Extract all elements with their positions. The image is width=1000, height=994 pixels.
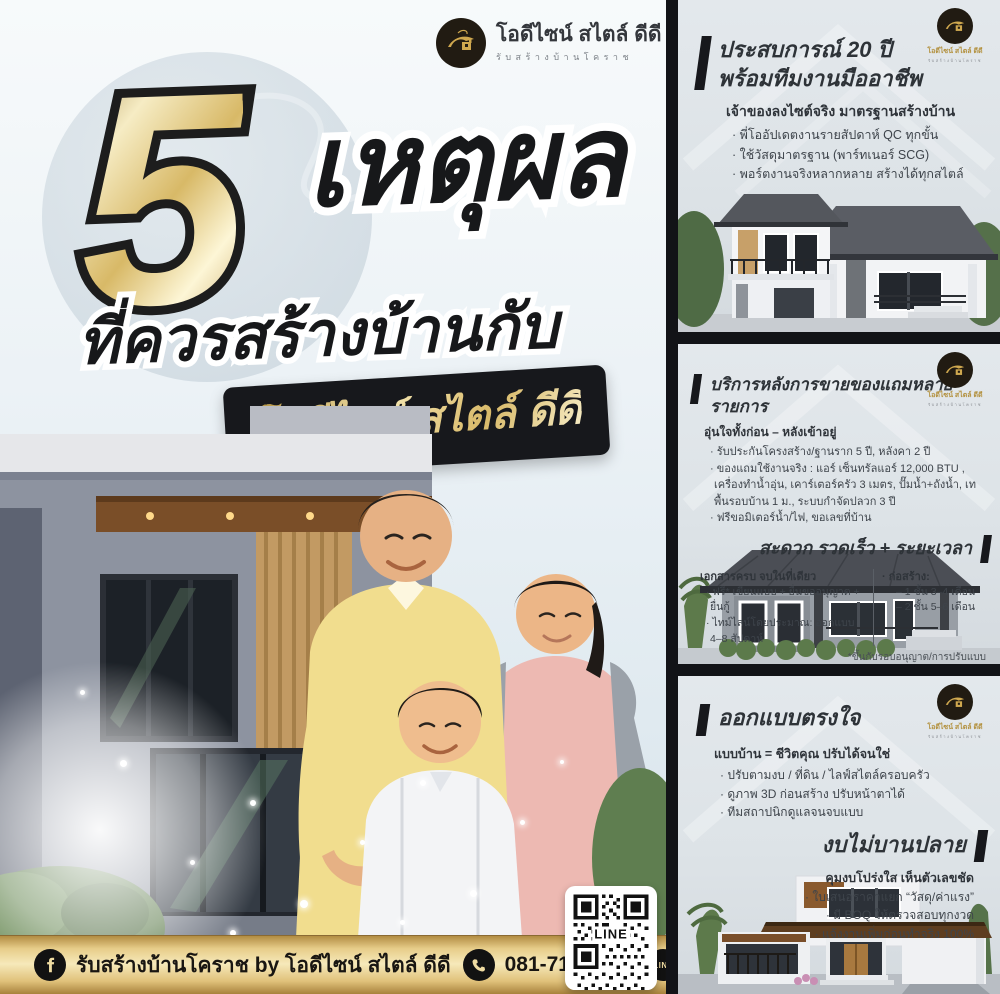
card-logo: โอดีไซน์ สไตล์ ดีดี รับสร้างบ้านโคราช (918, 8, 992, 64)
info-card-experience: โอดีไซน์ สไตล์ ดีดี รับสร้างบ้านโคราช ปร… (678, 0, 1000, 332)
card-logo-tagline: รับสร้างบ้านโคราช (918, 57, 992, 64)
house-photo-two-story (678, 164, 1000, 332)
info-card-design: โอดีไซน์ สไตล์ ดีดี รับสร้างบ้านโคราช ออ… (678, 676, 1000, 994)
sparkle-dot (120, 760, 127, 767)
sparkle-dot (190, 860, 195, 865)
card-subheading: อุ่นใจทั้งก่อน – หลังเข้าอยู่ (704, 423, 1000, 442)
bullet-item: · ไทม์ไลน์โดยประมาณ: ออกแบบ 4–8 สัปดาห์ (700, 616, 865, 648)
column-heading: · ก่อสร้าง: (882, 567, 992, 585)
bullet-item: · ทีมสถาปนิกดูแลจนจบแบบ (714, 803, 1000, 822)
budget-block: คุมงบโปร่งใส เห็นตัวเลขชัด · ใบเสนอราคาแ… (678, 868, 974, 944)
sparkle-dot (400, 920, 405, 925)
section2-subheading: คุมงบโปร่งใส เห็นตัวเลขชัด (678, 868, 974, 888)
hero-headline: เหตุผล เหตุผล (304, 101, 627, 224)
bullet-item: – 2 ชั้น 5–6 เดือน (890, 600, 992, 616)
hero-subheadline: ที่ควรสร้างบ้านกับ ที่ควรสร้างบ้านกับ (77, 291, 559, 379)
bullet-item: · ปรับตามงบ / ที่ดิน / ไลฟ์สไตล์ครอบครัว (714, 766, 1000, 785)
poster: โอดีไซน์ สไตล์ ดีดี รับสร้างบ้านโคราช 5 … (0, 0, 1000, 994)
bullet-item: · มี BOQ ให้ตรวจสอบทุกงวด (678, 906, 974, 925)
sparkle-dot (520, 820, 525, 825)
bullet-list: · ใบเสนอราคาแยก “วัสดุ/ค่าแรง” · มี BOQ … (678, 888, 974, 944)
bullet-item: · ฟรีขอมิเตอร์น้ำ/ไฟ, ขอเลขที่บ้าน (704, 510, 986, 527)
sparkle-dot (300, 900, 308, 908)
sparkle-dot (80, 690, 85, 695)
column-divider (873, 569, 874, 646)
card-title: ออกแบบตรงใจ (718, 704, 860, 733)
line-qr-card[interactable]: LINE (565, 886, 657, 990)
sparkle-dot (250, 800, 256, 806)
bullet-item: · ของแถมใช้งานจริง : แอร์ เซ็นทรัลแอร์ 1… (704, 461, 986, 511)
card-logo-name: โอดีไซน์ สไตล์ ดีดี (918, 722, 992, 733)
brand-name: โอดีไซน์ สไตล์ ดีดี (496, 22, 662, 48)
house-roof-icon (444, 26, 478, 60)
section2-title: สะดวก รวดเร็ว + ระยะเวลา (759, 537, 972, 560)
bullet-item: · แจ้งงานเพิ่มก่อนทำจริง 100% (678, 925, 974, 944)
bullet-item: · ใช้วัสดุมาตรฐาน (พาร์ทเนอร์ SCG) (726, 146, 1000, 165)
construction-column: · ก่อสร้าง: – 1 ชั้น 3–4 เดือน – 2 ชั้น … (882, 567, 992, 648)
documents-column: เอกสารครบ จบในที่เดียว · ฟรี* เขียนแบบ +… (700, 567, 865, 648)
header-accent-bar (690, 374, 702, 404)
brand-logo-icon (436, 18, 486, 68)
card-logo-tagline: รับสร้างบ้านโคราช (918, 401, 992, 408)
footnote: *ขึ้นกับรอบอนุญาต/การปรับแบบ (678, 650, 986, 664)
bullet-list: · รับประกันโครงสร้าง/ฐานราก 5 ปี, หลังคา… (704, 444, 986, 527)
card-logo-tagline: รับสร้างบ้านโคราช (918, 733, 992, 740)
card-logo: โอดีไซน์ สไตล์ ดีดี รับสร้างบ้านโคราช (918, 352, 992, 408)
section2-title: งบไม่บานปลาย (822, 831, 966, 860)
card-logo-icon (937, 684, 973, 720)
right-panel: โอดีไซน์ สไตล์ ดีดี รับสร้างบ้านโคราช ปร… (666, 0, 1000, 994)
bullet-item: · พอร์ตงานจริงหลากหลาย สร้างได้ทุกสไตล์ (726, 165, 1000, 184)
sparkle-dot (560, 760, 564, 764)
phone-icon (463, 949, 495, 981)
card-logo-icon (937, 8, 973, 44)
bullet-item: – 1 ชั้น 3–4 เดือน (890, 585, 992, 601)
card-logo-icon (937, 352, 973, 388)
card-logo: โอดีไซน์ สไตล์ ดีดี รับสร้างบ้านโคราช (918, 684, 992, 740)
header-accent-bar (696, 704, 710, 736)
facebook-label: รับสร้างบ้านโคราช by โอดีไซน์ สไตล์ ดีดี (76, 949, 451, 982)
info-card-aftersale: โอดีไซน์ สไตล์ ดีดี รับสร้างบ้านโคราช บร… (678, 344, 1000, 664)
sparkle-dot (360, 840, 365, 845)
card-title: ประสบการณ์ 20 ปี พร้อมทีมงานมืออาชีพ (718, 36, 922, 93)
bullet-list: – 1 ชั้น 3–4 เดือน – 2 ชั้น 5–6 เดือน (882, 585, 992, 617)
bullet-item: · รับประกันโครงสร้าง/ฐานราก 5 ปี, หลังคา… (704, 444, 986, 461)
bullet-list: · ปรับตามงบ / ที่ดิน / ไลฟ์สไตล์ครอบครัว… (714, 766, 1000, 822)
hero-title: 5 5 เหตุผล เหตุผล ที่ควรสร้างบ้านกับ ที่… (65, 60, 655, 380)
column-heading: เอกสารครบ จบในที่เดียว (700, 567, 865, 585)
card-subheading: แบบบ้าน = ชีวิตคุณ ปรับได้จนใช่ (714, 744, 1000, 764)
card-logo-name: โอดีไซน์ สไตล์ ดีดี (918, 390, 992, 401)
bullet-list: · ฟรี* เขียนแบบ + ยื่นขออนุญาต + ยื่นกู้… (700, 585, 865, 648)
bullet-list: · พี่โออัปเดตงานรายสัปดาห์ QC ทุกขั้น · … (726, 126, 1000, 184)
left-panel: โอดีไซน์ สไตล์ ดีดี รับสร้างบ้านโคราช 5 … (0, 0, 666, 994)
bullet-item: · ดูภาพ 3D ก่อนสร้าง ปรับหน้าตาได้ (714, 785, 1000, 804)
card-logo-name: โอดีไซน์ สไตล์ ดีดี (918, 46, 992, 57)
sparkle-dot (470, 890, 477, 897)
card-subheading: เจ้าของลงไซต์จริง มาตรฐานสร้างบ้าน (726, 101, 1000, 123)
bullet-item: · พี่โออัปเดตงานรายสัปดาห์ QC ทุกขั้น (726, 126, 1000, 145)
sparkle-dot (420, 780, 426, 786)
qr-line-label: LINE (592, 926, 630, 941)
facebook-contact[interactable]: รับสร้างบ้านโคราช by โอดีไซน์ สไตล์ ดีดี (34, 949, 451, 982)
bullet-item: · ใบเสนอราคาแยก “วัสดุ/ค่าแรง” (678, 888, 974, 907)
facebook-icon (34, 949, 66, 981)
bullet-item: · ฟรี* เขียนแบบ + ยื่นขออนุญาต + ยื่นกู้ (700, 585, 865, 617)
